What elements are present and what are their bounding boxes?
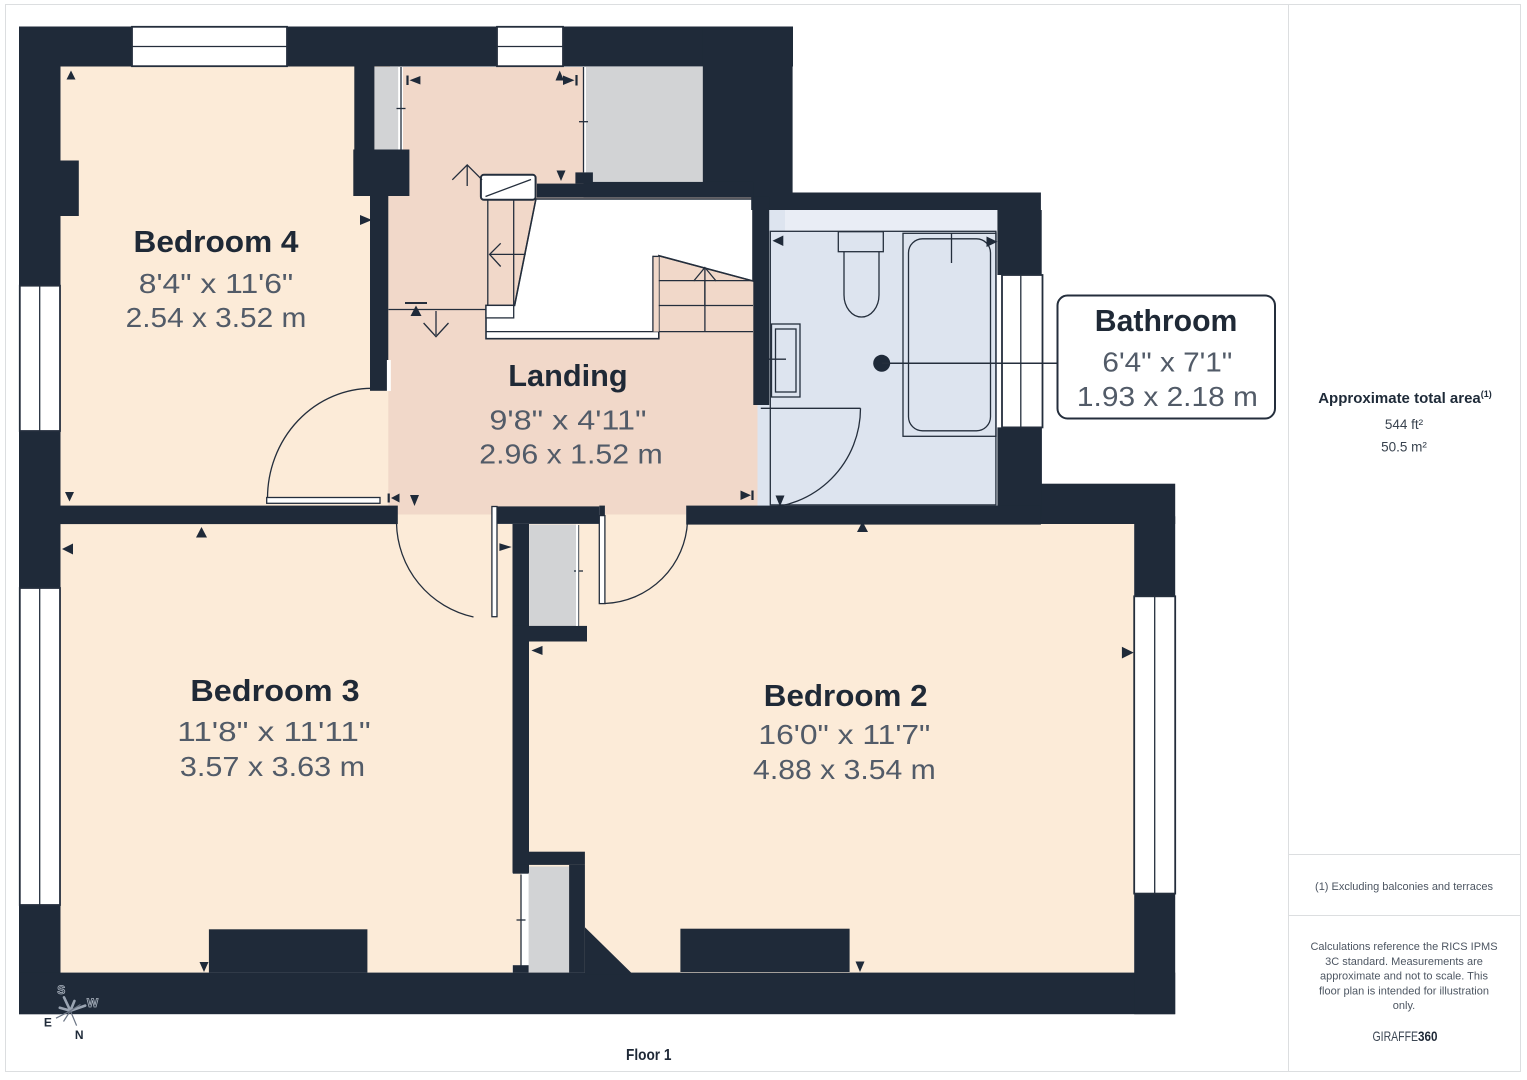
- svg-text:Calculations reference the RIC: Calculations reference the RICS IPMS: [1310, 941, 1497, 953]
- svg-text:Landing: Landing: [508, 358, 627, 393]
- svg-text:Bedroom 4: Bedroom 4: [134, 224, 300, 259]
- svg-text:11'8" x 11'11": 11'8" x 11'11": [177, 716, 370, 747]
- svg-text:3.57 x 3.63 m: 3.57 x 3.63 m: [180, 751, 365, 782]
- svg-text:9'8" x 4'11": 9'8" x 4'11": [489, 405, 646, 436]
- svg-text:2.96 x 1.52 m: 2.96 x 1.52 m: [479, 439, 662, 470]
- svg-text:E: E: [44, 1016, 52, 1030]
- svg-text:1.93 x 2.18 m: 1.93 x 2.18 m: [1077, 381, 1258, 412]
- svg-text:(1) Excluding balconies and te: (1) Excluding balconies and terraces: [1315, 881, 1493, 893]
- svg-text:4.88 x 3.54 m: 4.88 x 3.54 m: [753, 754, 936, 785]
- svg-text:50.5 m²: 50.5 m²: [1381, 440, 1427, 455]
- svg-text:approximate and not to scale.: approximate and not to scale. This: [1320, 971, 1488, 983]
- svg-text:2.54 x 3.52 m: 2.54 x 3.52 m: [126, 302, 307, 333]
- svg-text:W: W: [87, 996, 99, 1010]
- svg-text:only.: only.: [1393, 1000, 1415, 1012]
- svg-text:Bedroom 3: Bedroom 3: [190, 673, 359, 708]
- svg-text:8'4" x 11'6": 8'4" x 11'6": [139, 268, 294, 299]
- svg-text:Floor 1: Floor 1: [626, 1047, 672, 1064]
- svg-text:Bedroom 2: Bedroom 2: [764, 678, 928, 713]
- svg-text:16'0" x 11'7": 16'0" x 11'7": [758, 719, 930, 750]
- svg-text:S: S: [57, 983, 65, 997]
- svg-text:Approximate total area(1): Approximate total area(1): [1318, 389, 1492, 407]
- svg-text:N: N: [75, 1028, 84, 1042]
- svg-text:3C standard. Measurements are: 3C standard. Measurements are: [1325, 956, 1483, 968]
- svg-text:Bathroom: Bathroom: [1095, 303, 1238, 338]
- svg-text:6'4" x 7'1": 6'4" x 7'1": [1102, 347, 1232, 378]
- svg-text:GIRAFFE360: GIRAFFE360: [1373, 1028, 1438, 1044]
- svg-text:floor plan is intended for ill: floor plan is intended for illustration: [1319, 985, 1489, 997]
- svg-text:544 ft²: 544 ft²: [1385, 417, 1424, 432]
